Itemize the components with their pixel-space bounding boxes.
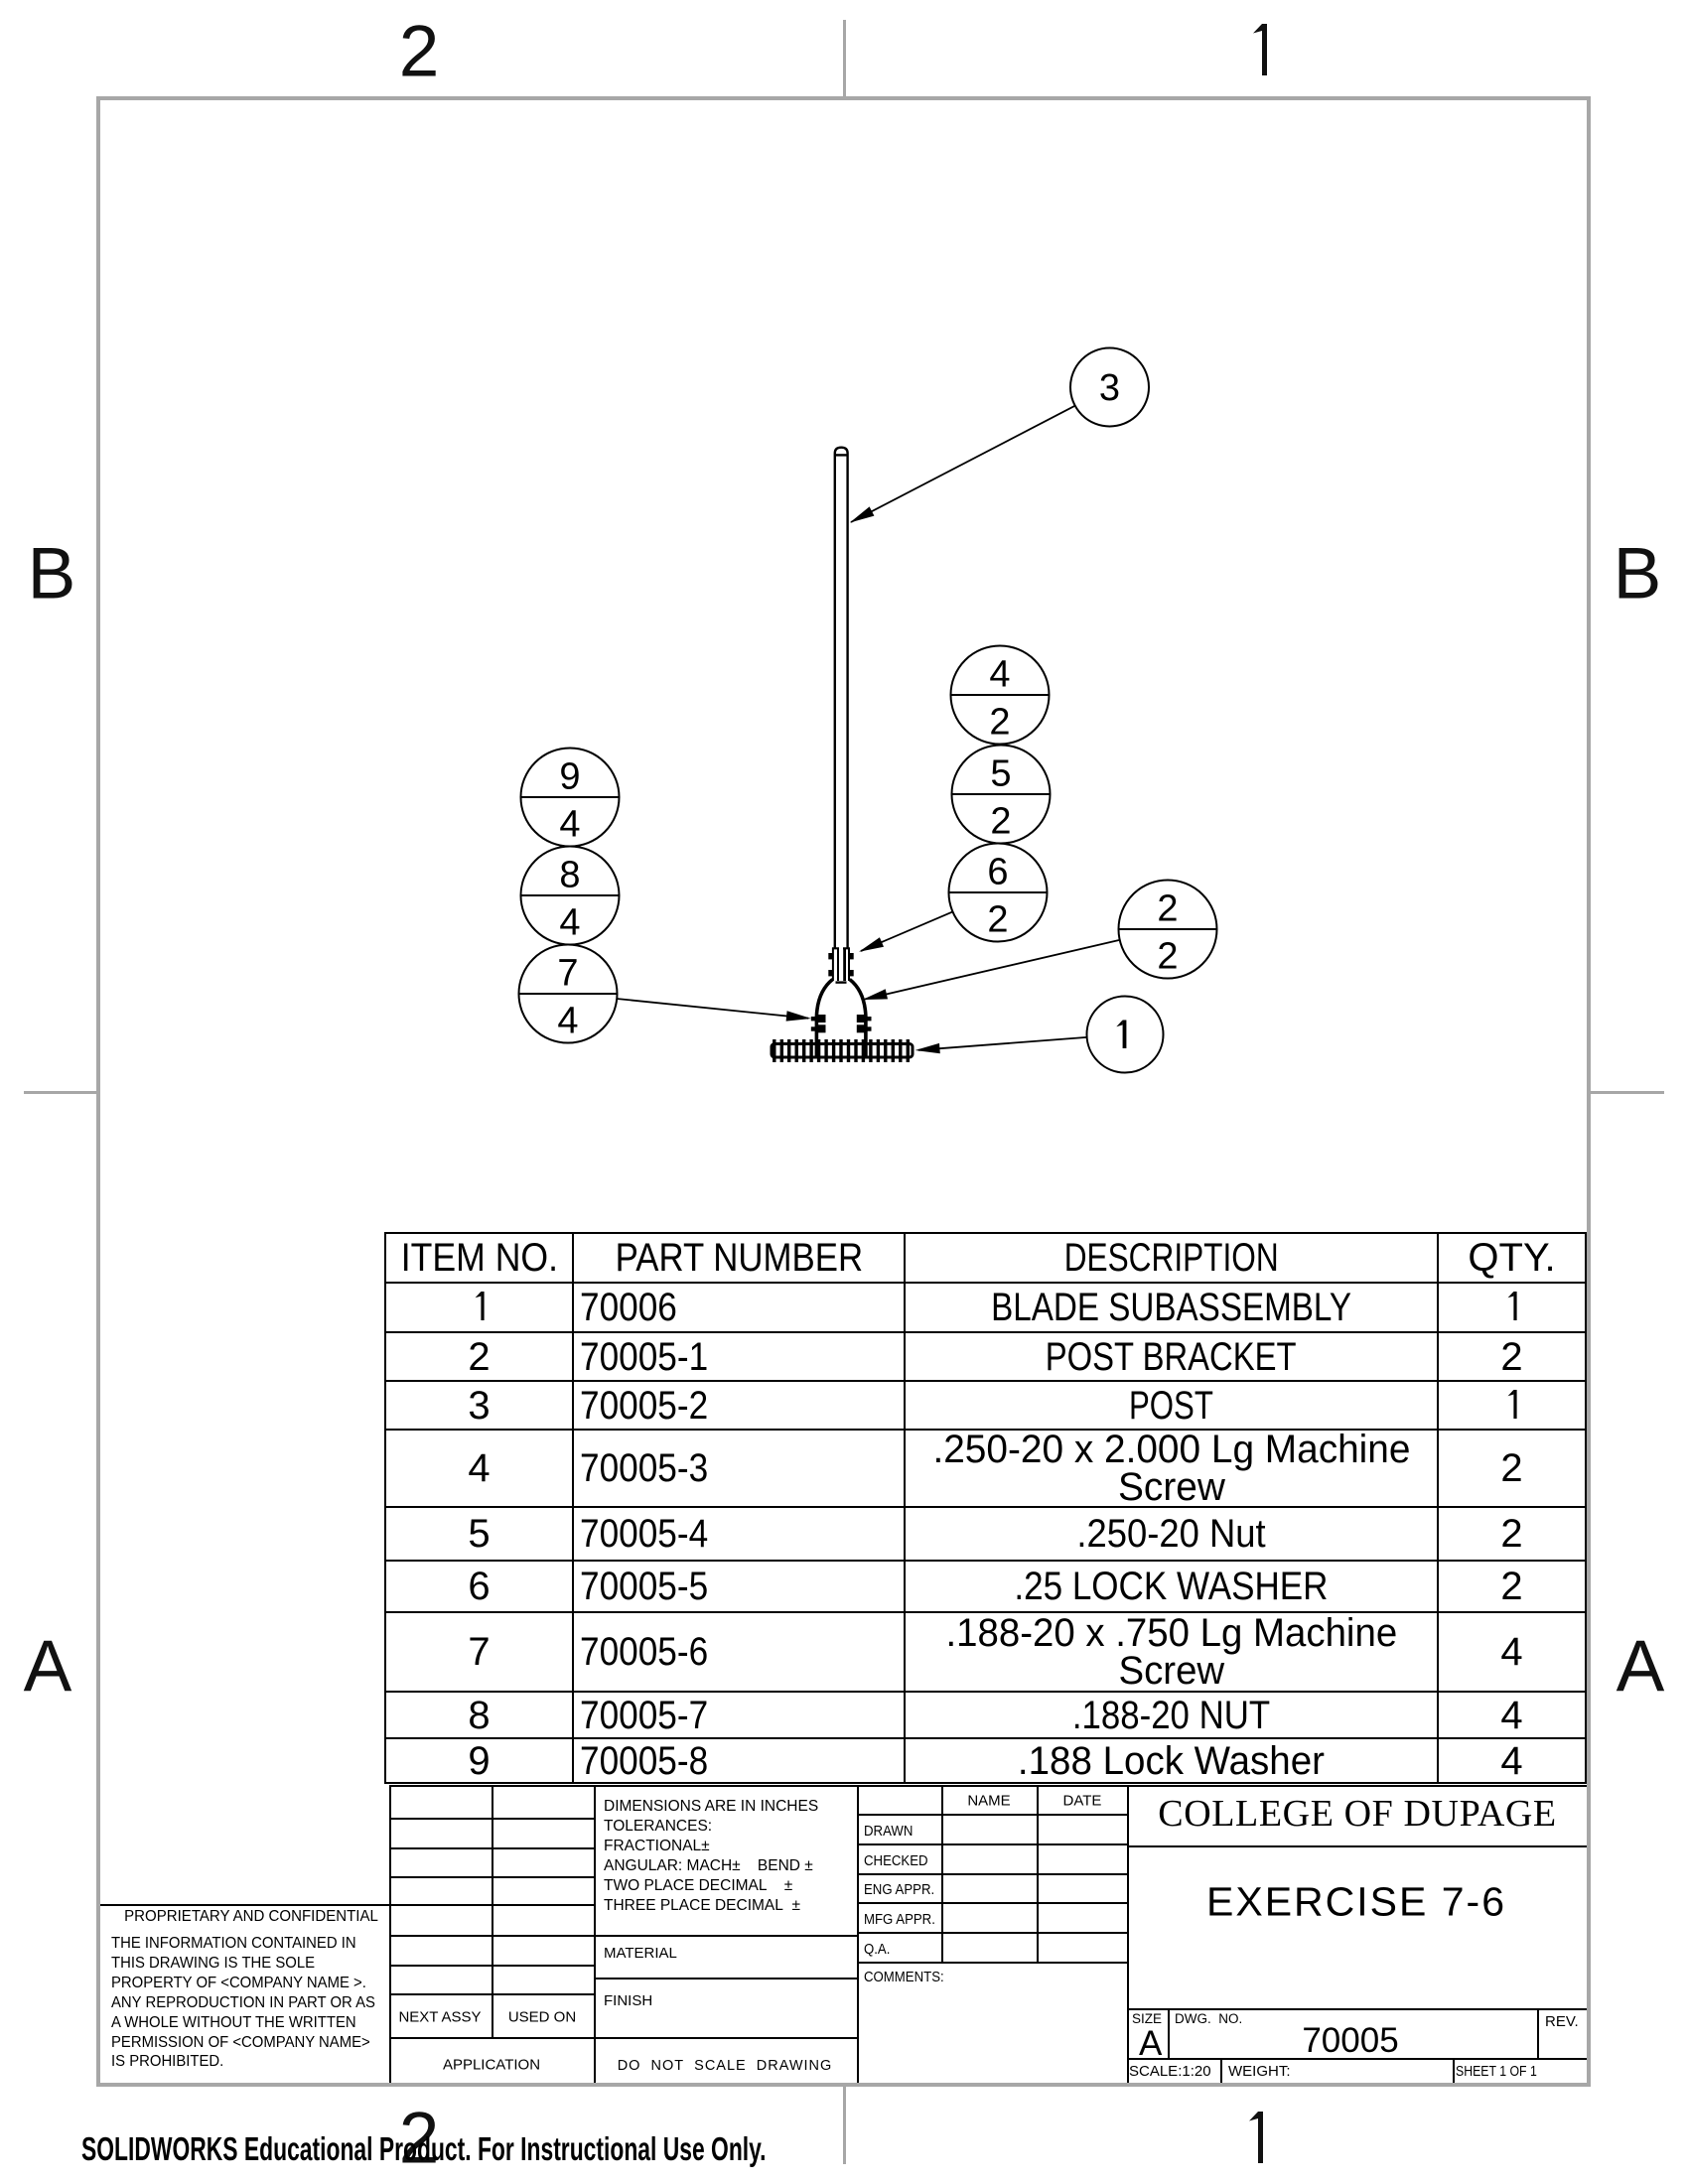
svg-text:3: 3 — [1099, 367, 1120, 409]
svg-text:2: 2 — [1157, 888, 1178, 930]
svg-text:4: 4 — [559, 804, 580, 846]
svg-text:2: 2 — [990, 801, 1011, 843]
svg-text:7: 7 — [557, 953, 578, 995]
svg-text:4: 4 — [559, 902, 580, 944]
svg-text:5: 5 — [990, 753, 1011, 795]
svg-text:2: 2 — [989, 702, 1010, 744]
svg-text:9: 9 — [559, 756, 580, 798]
svg-text:6: 6 — [987, 852, 1008, 893]
svg-text:4: 4 — [557, 1001, 578, 1042]
svg-text:8: 8 — [559, 855, 580, 896]
svg-text:2: 2 — [987, 899, 1008, 941]
svg-text:4: 4 — [989, 654, 1010, 696]
svg-text:2: 2 — [1157, 936, 1178, 978]
